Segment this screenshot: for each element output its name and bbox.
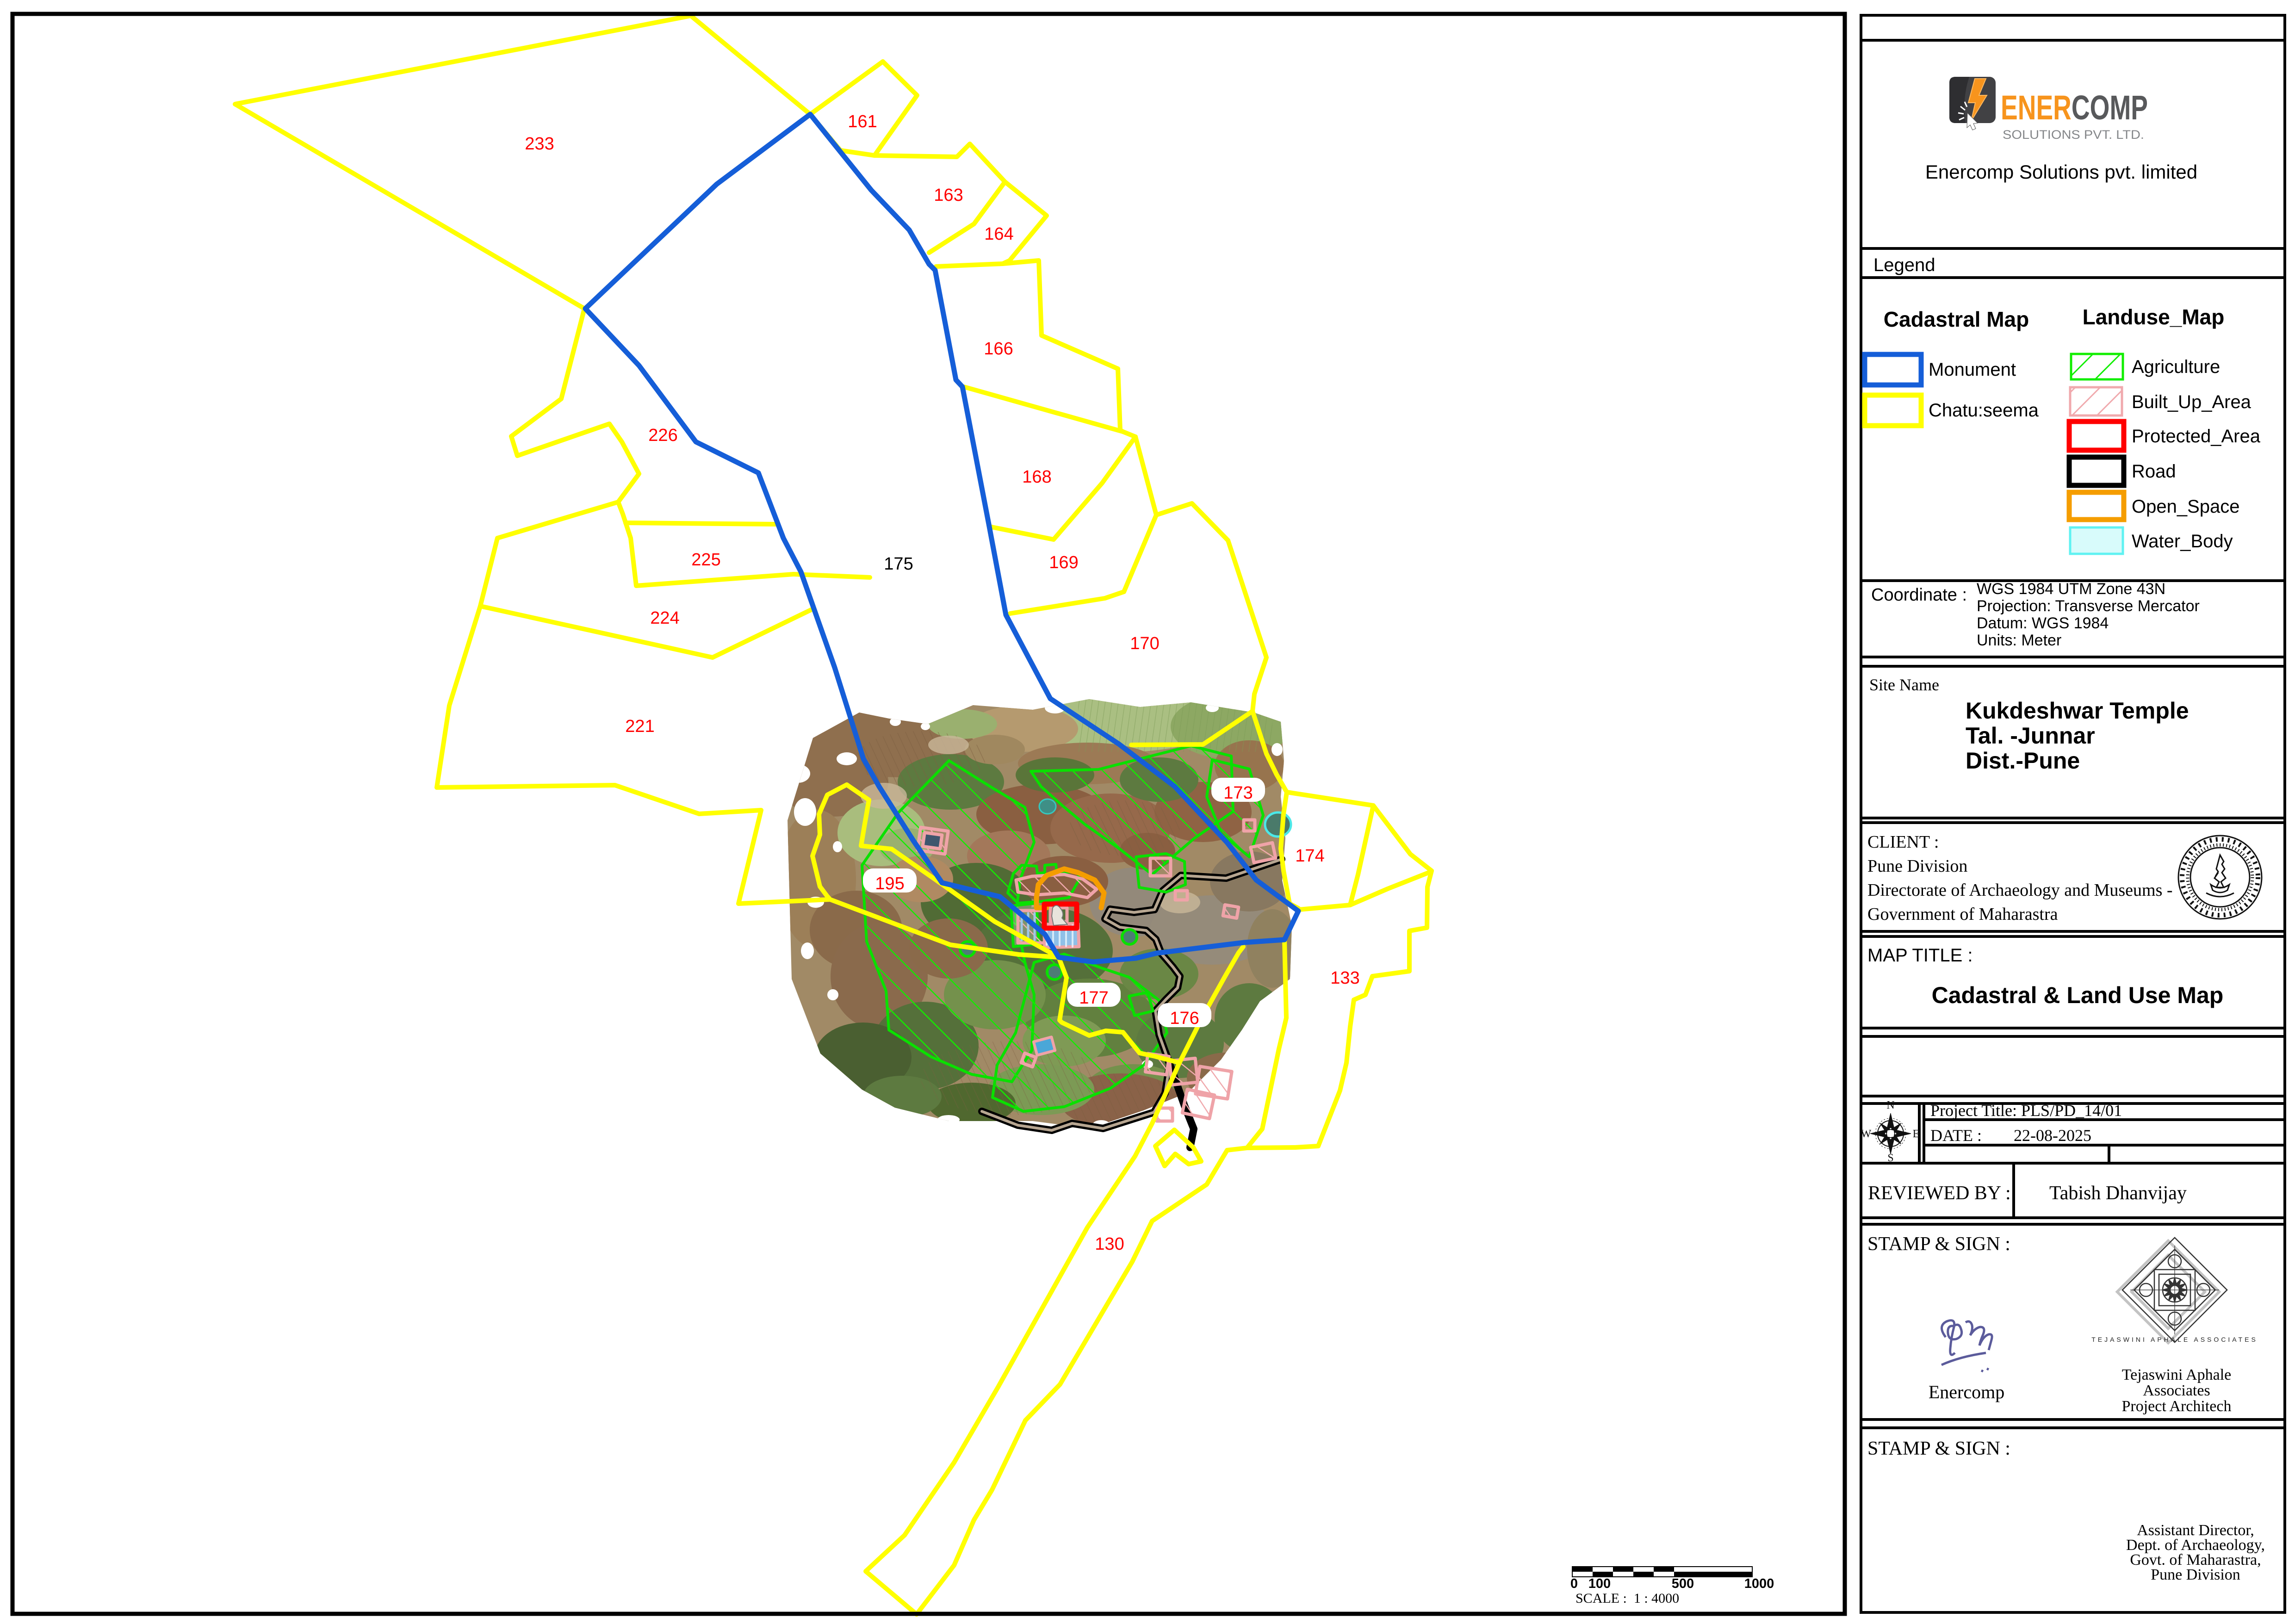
svg-text:Tabish Dhanvijay: Tabish Dhanvijay bbox=[2049, 1183, 2187, 1204]
svg-text:163: 163 bbox=[934, 186, 963, 205]
svg-text:STAMP & SIGN :: STAMP & SIGN : bbox=[1867, 1233, 2010, 1255]
svg-text:Cadastral Map: Cadastral Map bbox=[1884, 307, 2029, 331]
svg-text:Built_Up_Area: Built_Up_Area bbox=[2132, 392, 2252, 412]
svg-text:166: 166 bbox=[984, 339, 1013, 359]
svg-text:Units: Meter: Units: Meter bbox=[1977, 632, 2061, 649]
svg-text:Coordinate :: Coordinate : bbox=[1871, 585, 1967, 605]
svg-text:Project Title: PLS/PD_14/01: Project Title: PLS/PD_14/01 bbox=[1930, 1101, 2122, 1120]
svg-text:0: 0 bbox=[1570, 1576, 1578, 1591]
svg-text:Legend: Legend bbox=[1873, 255, 1935, 275]
svg-text:164: 164 bbox=[984, 224, 1013, 244]
svg-text:ENERCOMP: ENERCOMP bbox=[2001, 88, 2148, 127]
svg-text:WGS 1984 UTM Zone 43N: WGS 1984 UTM Zone 43N bbox=[1977, 580, 2165, 598]
svg-text:233: 233 bbox=[525, 134, 554, 154]
svg-text:224: 224 bbox=[650, 608, 679, 628]
svg-text:168: 168 bbox=[1022, 467, 1051, 487]
svg-text:CLIENT :: CLIENT : bbox=[1867, 832, 1939, 852]
svg-text:E: E bbox=[1913, 1128, 1920, 1140]
svg-text:Protected_Area: Protected_Area bbox=[2132, 426, 2261, 446]
svg-text:Kukdeshwar Temple: Kukdeshwar Temple bbox=[1966, 698, 2189, 724]
svg-text:174: 174 bbox=[1295, 846, 1324, 866]
svg-text:176: 176 bbox=[1170, 1009, 1199, 1028]
svg-text:170: 170 bbox=[1130, 634, 1159, 653]
svg-text:161: 161 bbox=[848, 112, 877, 131]
svg-text:169: 169 bbox=[1049, 553, 1078, 572]
svg-text:W: W bbox=[1861, 1128, 1872, 1140]
svg-text:DATE :: DATE : bbox=[1930, 1126, 1982, 1145]
svg-text:1000: 1000 bbox=[1744, 1576, 1774, 1591]
svg-text:Government of Maharastra: Government of Maharastra bbox=[1867, 905, 2058, 924]
svg-text:Water_Body: Water_Body bbox=[2132, 531, 2233, 552]
svg-text:S: S bbox=[1887, 1152, 1893, 1164]
svg-text:Site Name: Site Name bbox=[1869, 676, 1939, 694]
svg-text:Associates: Associates bbox=[2143, 1382, 2210, 1399]
svg-text:22-08-2025: 22-08-2025 bbox=[2014, 1126, 2091, 1145]
svg-text:195: 195 bbox=[875, 874, 904, 893]
svg-text:130: 130 bbox=[1095, 1234, 1124, 1254]
svg-text:MAP TITLE :: MAP TITLE : bbox=[1867, 945, 1972, 966]
svg-text:Open_Space: Open_Space bbox=[2132, 496, 2240, 517]
svg-text:Road: Road bbox=[2132, 461, 2176, 482]
svg-text:177: 177 bbox=[1079, 988, 1108, 1008]
svg-text:221: 221 bbox=[625, 717, 654, 736]
svg-text:Projection: Transverse Mercato: Projection: Transverse Mercator bbox=[1977, 597, 2200, 615]
svg-text:Tal. -Junnar: Tal. -Junnar bbox=[1966, 723, 2095, 749]
svg-text:100: 100 bbox=[1588, 1576, 1611, 1591]
svg-text:Dist.-Pune: Dist.-Pune bbox=[1966, 748, 2080, 774]
svg-text:Agriculture: Agriculture bbox=[2132, 357, 2220, 377]
svg-text:Monument: Monument bbox=[1929, 360, 2016, 380]
svg-text:Enercomp: Enercomp bbox=[1929, 1382, 2004, 1402]
svg-text:STAMP & SIGN :: STAMP & SIGN : bbox=[1867, 1438, 2010, 1459]
svg-text:Enercomp Solutions pvt. limite: Enercomp Solutions pvt. limited bbox=[1925, 161, 2197, 183]
svg-text:500: 500 bbox=[1672, 1576, 1694, 1591]
svg-text:REVIEWED BY :: REVIEWED BY : bbox=[1868, 1183, 2011, 1204]
svg-text:Chatu:seema: Chatu:seema bbox=[1929, 400, 2039, 421]
svg-text:225: 225 bbox=[691, 550, 720, 570]
svg-text:Tejaswini Aphale: Tejaswini Aphale bbox=[2122, 1366, 2232, 1383]
svg-text:226: 226 bbox=[648, 426, 677, 445]
svg-text:Datum: WGS 1984: Datum: WGS 1984 bbox=[1977, 614, 2109, 632]
svg-text:133: 133 bbox=[1330, 968, 1359, 988]
svg-text:Directorate of Archaeology and: Directorate of Archaeology and Museums - bbox=[1867, 880, 2173, 900]
svg-text:Pune Division: Pune Division bbox=[2151, 1566, 2240, 1583]
svg-text:TEJASWINI APHALE ASSOCIATES: TEJASWINI APHALE ASSOCIATES bbox=[2091, 1336, 2258, 1343]
svg-text:Cadastral & Land Use Map: Cadastral & Land Use Map bbox=[1932, 982, 2224, 1008]
svg-text:N: N bbox=[1886, 1099, 1894, 1111]
svg-text:173: 173 bbox=[1223, 783, 1253, 803]
svg-text:SCALE : 1 : 4000: SCALE : 1 : 4000 bbox=[1575, 1591, 1679, 1606]
svg-text:Pune Division: Pune Division bbox=[1867, 856, 1967, 876]
svg-text:Landuse_Map: Landuse_Map bbox=[2083, 305, 2225, 329]
svg-text:SOLUTIONS PVT. LTD.: SOLUTIONS PVT. LTD. bbox=[2003, 128, 2144, 142]
svg-text:Project Architech: Project Architech bbox=[2122, 1398, 2232, 1415]
svg-text:175: 175 bbox=[884, 554, 913, 574]
